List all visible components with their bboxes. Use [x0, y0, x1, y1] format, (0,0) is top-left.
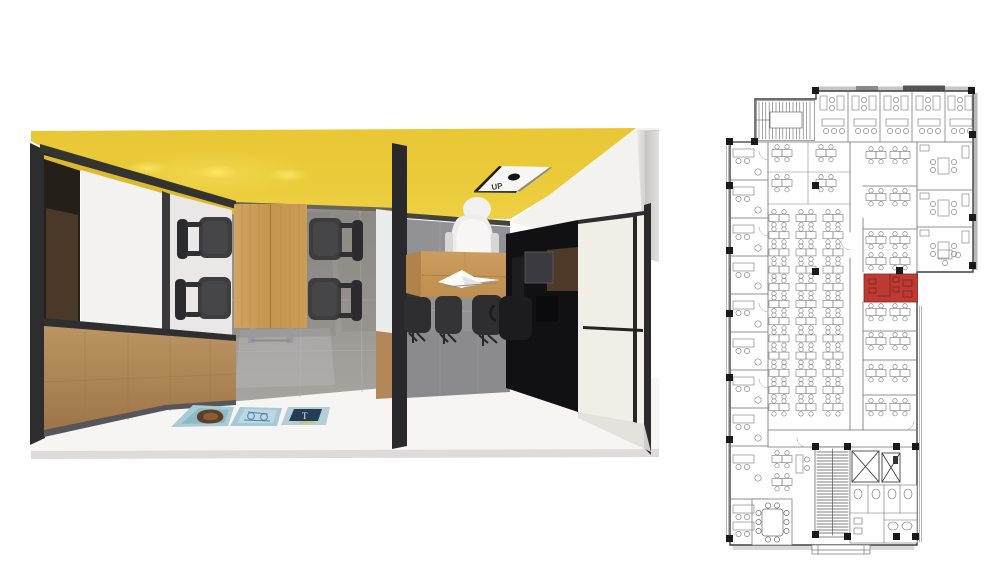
svg-text:T: T: [302, 411, 308, 421]
